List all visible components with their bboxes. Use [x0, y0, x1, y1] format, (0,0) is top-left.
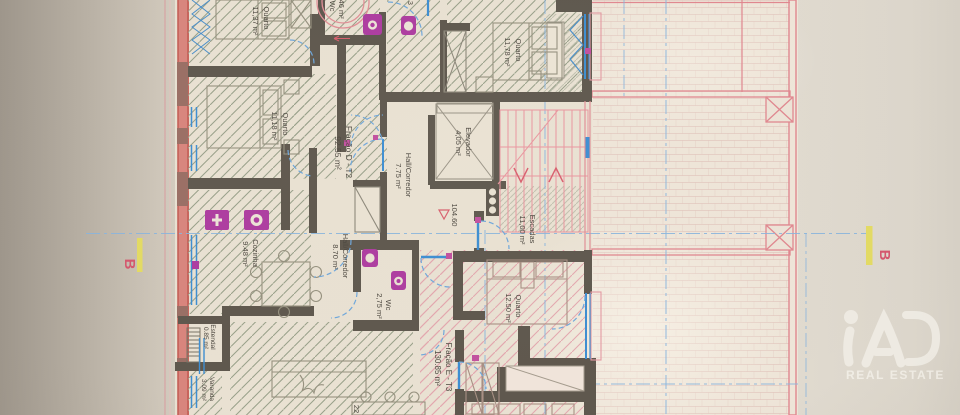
svg-text:11,18 m²: 11,18 m² [270, 111, 279, 141]
svg-text:Fração E - T3: Fração E - T3 [444, 343, 453, 392]
svg-text:2,75 m²: 2,75 m² [375, 293, 384, 319]
svg-text:Hall/Corredor: Hall/Corredor [404, 153, 413, 198]
svg-text:Estendal: Estendal [209, 324, 216, 350]
svg-text:11,78 m²: 11,78 m² [503, 37, 512, 67]
svg-text:4,46 m²: 4,46 m² [337, 0, 346, 19]
svg-text:12.50 m²: 12.50 m² [504, 293, 513, 323]
svg-text:11,37 m²: 11,37 m² [251, 6, 260, 36]
svg-text:3.09 m²: 3.09 m² [200, 379, 207, 402]
svg-text:Quarto: Quarto [514, 295, 523, 318]
svg-text:104.60: 104.60 [450, 204, 459, 227]
svg-text:7.75 m²: 7.75 m² [394, 163, 403, 189]
svg-text:Quarto: Quarto [262, 7, 271, 30]
svg-text:B: B [121, 259, 138, 270]
svg-text:22: 22 [352, 405, 361, 413]
svg-text:8.70 m²: 8.70 m² [331, 244, 340, 270]
svg-text:4,05 m²: 4,05 m² [454, 130, 463, 156]
svg-text:3: 3 [406, 1, 413, 5]
svg-text:92.55 m²: 92.55 m² [333, 136, 343, 170]
svg-text:Wc: Wc [384, 300, 393, 311]
svg-text:9.48 m²: 9.48 m² [241, 241, 250, 267]
svg-text:Quarto: Quarto [514, 39, 523, 62]
svg-text:B: B [876, 250, 893, 261]
svg-text:130.85 m²: 130.85 m² [433, 350, 442, 386]
svg-text:Quarto: Quarto [281, 113, 290, 136]
svg-text:Fração D - T2: Fração D - T2 [344, 126, 354, 179]
svg-text:Escadas: Escadas [528, 215, 537, 244]
svg-text:0.85 m²: 0.85 m² [202, 327, 209, 350]
svg-text:11,00 m²: 11,00 m² [518, 215, 527, 245]
svg-text:Elevador: Elevador [464, 127, 473, 157]
svg-text:Cozinha: Cozinha [251, 239, 260, 267]
svg-text:Varanda: Varanda [208, 377, 215, 401]
svg-text:Wc: Wc [328, 1, 337, 12]
svg-text:Hall/Corredor: Hall/Corredor [341, 234, 350, 279]
svg-text:REAL ESTATE: REAL ESTATE [846, 368, 945, 382]
